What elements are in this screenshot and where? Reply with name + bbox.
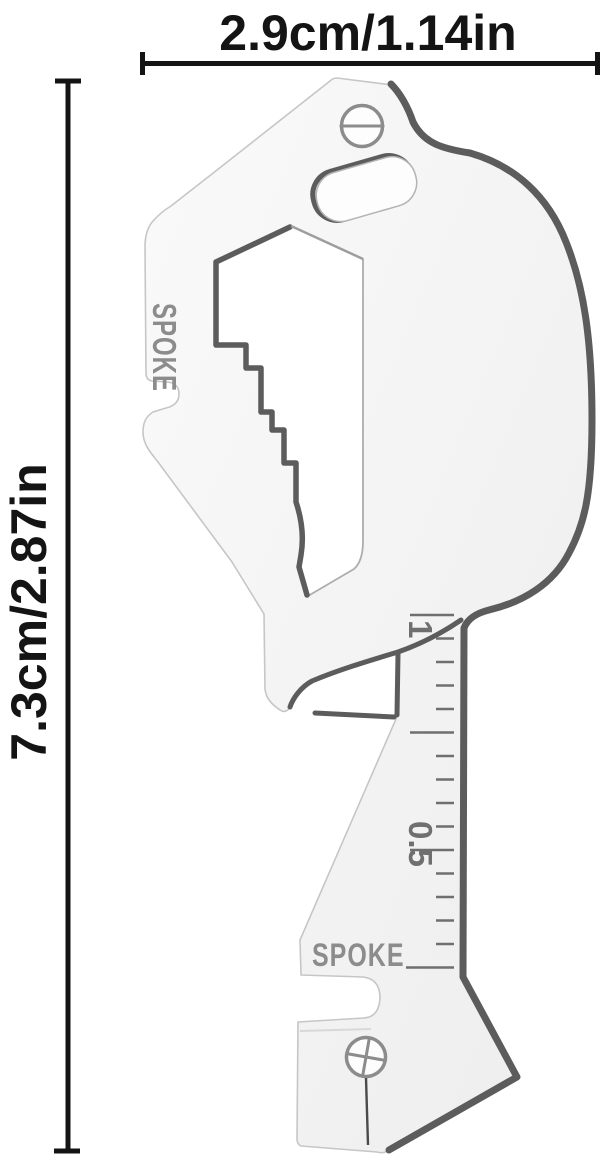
- multi-tool: SPOKE 1 0.5 SPOKE: [143, 78, 592, 1153]
- product-figure: 2.9cm/1.14in 7.3cm/2.87in SPOKE: [0, 0, 602, 1162]
- tool-body: [143, 78, 592, 1153]
- ruler-label-1: 1: [402, 620, 439, 638]
- side-engraving-spoke: SPOKE: [145, 303, 182, 392]
- height-dimension-label: 7.3cm/2.87in: [1, 463, 57, 760]
- product-image: 2.9cm/1.14in 7.3cm/2.87in SPOKE: [0, 0, 602, 1162]
- bottom-engraving-spoke: SPOKE: [312, 938, 405, 974]
- slotted-screwdriver-hole: [341, 106, 383, 147]
- width-dimension: 2.9cm/1.14in: [142, 5, 598, 75]
- ruler-label-05: 0.5: [402, 821, 439, 867]
- height-dimension: 7.3cm/2.87in: [1, 81, 81, 1151]
- width-dimension-label: 2.9cm/1.14in: [219, 5, 516, 61]
